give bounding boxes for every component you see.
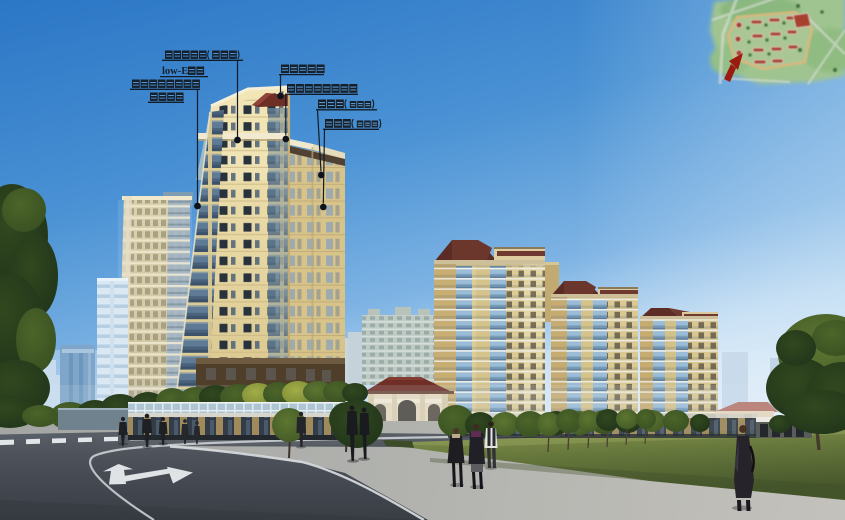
svg-text:low-E: low-E — [162, 66, 188, 77]
